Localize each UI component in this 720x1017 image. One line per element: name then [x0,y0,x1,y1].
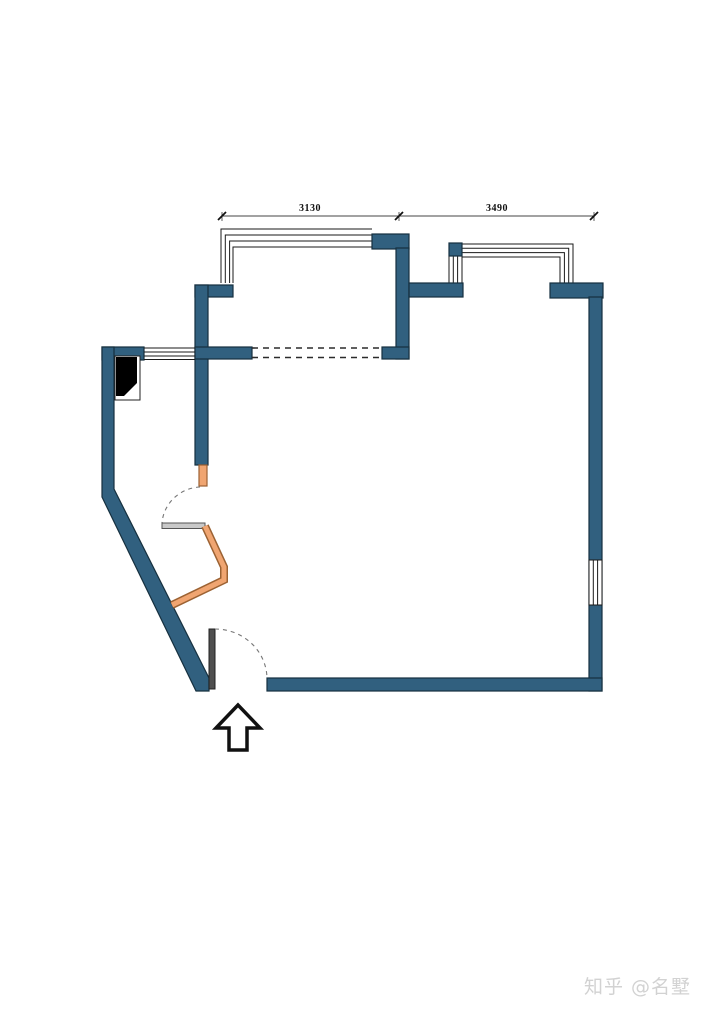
watermark: 知乎 @名墅 [584,972,691,999]
wall-bay1-header [372,234,409,249]
bay-window-top-left [221,229,372,283]
pass-through-opening [252,348,382,358]
dimension-label-left: 3130 [299,203,321,214]
window-line [233,247,372,283]
window-line [462,257,560,283]
orange-wall-stub [199,465,207,486]
door-swing-arc [162,487,200,523]
wall-bottom [267,678,602,691]
dimension-label-right: 3490 [486,203,508,214]
left-wall-window [144,348,195,360]
wall-interior-left [195,347,252,359]
window-line [462,244,573,283]
orange-partition-wall [172,526,224,605]
entry-door [209,629,267,689]
window-line [462,248,569,283]
entry-door-swing-arc [215,629,267,679]
bay-window-top-right [449,244,573,283]
entry-door-leaf [209,629,215,689]
window-line [221,229,372,283]
right-wall-window [589,560,602,605]
wall-middle-vertical [195,285,208,465]
floor-plan-canvas: 3130 3490 [0,0,720,1017]
wall-between-bays [409,283,463,297]
wall-bay1-right [396,248,409,359]
wall-bay2-left-pier [449,243,462,256]
interior-door-leaf [162,523,205,529]
wall-bay2-header [550,283,603,298]
dimension-annotations: 3130 3490 [218,203,598,221]
interior-door [162,465,224,605]
window-frame [589,560,602,605]
walls [102,234,603,691]
entry-arrow-icon [216,705,260,750]
wall-right [589,297,602,691]
duct-shaft-symbol [115,356,140,400]
wall-interior-right [382,347,409,359]
window-line [225,235,372,283]
